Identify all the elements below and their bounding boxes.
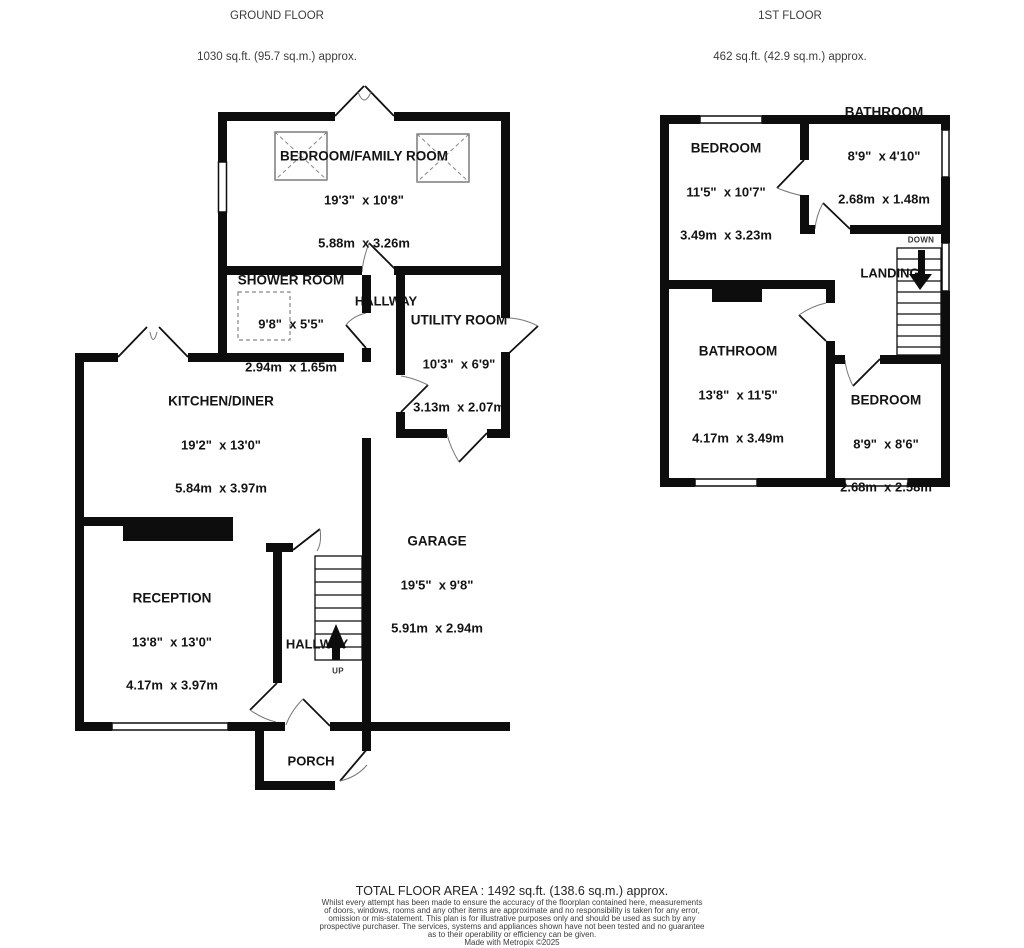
room-label-garage: GARAGE 19'5" x 9'8" 5.91m x 2.94m: [391, 505, 483, 665]
room-label-bathroom1: BATHROOM 8'9" x 4'10" 2.68m x 1.48m: [838, 76, 930, 236]
room-name: UTILITY ROOM: [411, 313, 508, 328]
room-dims-metric: 5.84m x 3.97m: [168, 481, 274, 496]
door-leaf: [777, 160, 804, 188]
room-name: BEDROOM: [680, 141, 772, 156]
door-leaf: [799, 315, 826, 341]
room-name: RECEPTION: [126, 591, 218, 606]
room-label-reception: RECEPTION 13'8" x 13'0" 4.17m x 3.97m: [126, 562, 218, 722]
label-hallway-upper: HALLWAY: [355, 294, 417, 309]
room-dims-metric: 2.68m x 2.58m: [840, 480, 932, 495]
door-arc: [815, 203, 823, 229]
window-symbol: [219, 162, 227, 212]
door-leaf: [293, 529, 320, 550]
window-symbol: [942, 130, 949, 177]
room-dims-metric: 4.17m x 3.97m: [126, 678, 218, 693]
room-name: BATHROOM: [838, 105, 930, 120]
room-dims-imperial: 11'5" x 10'7": [680, 185, 772, 200]
room-dims-metric: 3.49m x 3.23m: [680, 228, 772, 243]
window-symbol: [112, 723, 228, 730]
window-symbol: [695, 479, 757, 486]
label-down: DOWN: [908, 236, 935, 245]
stairs-outline: [897, 248, 941, 355]
label-up: UP: [332, 667, 344, 676]
room-name: BEDROOM: [840, 393, 932, 408]
room-name: BATHROOM: [692, 344, 784, 359]
room-dims-imperial: 13'8" x 11'5": [692, 388, 784, 403]
room-dims-metric: 5.91m x 2.94m: [391, 621, 483, 636]
room-label-bedroom1: BEDROOM 11'5" x 10'7" 3.49m x 3.23m: [680, 112, 772, 272]
first-floor-area: 462 sq.ft. (42.9 sq.m.) approx.: [713, 51, 866, 65]
room-dims-metric: 4.17m x 3.49m: [692, 431, 784, 446]
room-name: SHOWER ROOM: [238, 273, 345, 288]
room-name: GARAGE: [391, 534, 483, 549]
room-label-bedroom2: BEDROOM 8'9" x 8'6" 2.68m x 2.58m: [840, 364, 932, 524]
door-arc: [346, 313, 366, 325]
room-label-utility: UTILITY ROOM 10'3" x 6'9" 3.13m x 2.07m: [411, 284, 508, 444]
label-landing: LANDING: [860, 266, 919, 281]
door-leaf: [159, 327, 188, 357]
floorplan-page: GROUND FLOOR 1030 sq.ft. (95.7 sq.m.) ap…: [0, 0, 1024, 948]
room-name: KITCHEN/DINER: [168, 394, 274, 409]
label-porch: PORCH: [288, 754, 335, 769]
stairs-treads: [315, 569, 362, 647]
door-arc: [507, 318, 538, 326]
room-dims-metric: 3.13m x 2.07m: [411, 400, 508, 415]
room-dims-metric: 2.68m x 1.48m: [838, 192, 930, 207]
door-leaf: [507, 326, 538, 355]
room-dims-imperial: 19'5" x 9'8": [391, 578, 483, 593]
door-arc: [250, 710, 276, 722]
first-floor-stairs: [897, 248, 941, 355]
door-arc: [340, 765, 367, 781]
window-symbol: [942, 243, 949, 291]
total-floor-area: TOTAL FLOOR AREA : 1492 sq.ft. (138.6 sq…: [356, 884, 668, 898]
ground-floor-title: GROUND FLOOR: [197, 10, 357, 24]
room-name: BEDROOM/FAMILY ROOM: [280, 149, 448, 164]
door-leaf: [118, 327, 147, 357]
door-leaf: [340, 748, 368, 781]
door-leaf: [303, 699, 330, 726]
room-dims-imperial: 8'9" x 8'6": [840, 437, 932, 452]
room-dims-imperial: 9'8" x 5'5": [238, 317, 345, 332]
disclaimer-text: Whilst every attempt has been made to en…: [252, 899, 772, 946]
ground-floor-header: GROUND FLOOR 1030 sq.ft. (95.7 sq.m.) ap…: [197, 0, 357, 91]
door-arc: [150, 332, 157, 340]
metropix-credit: Made with Metropix ©2025: [252, 939, 772, 947]
door-arc: [317, 529, 321, 551]
door-leaf: [365, 86, 394, 116]
door-leaf: [250, 683, 277, 710]
room-dims-imperial: 19'3" x 10'8": [280, 193, 448, 208]
room-dims-imperial: 13'8" x 13'0": [126, 635, 218, 650]
door-arc: [358, 92, 371, 100]
room-dims-imperial: 8'9" x 4'10": [838, 149, 930, 164]
room-dims-imperial: 19'2" x 13'0": [168, 438, 274, 453]
room-label-bathroom2: BATHROOM 13'8" x 11'5" 4.17m x 3.49m: [692, 315, 784, 475]
door-leaf: [346, 325, 366, 348]
door-arc: [777, 188, 804, 196]
label-hallway-lower: HALLWAY: [286, 637, 348, 652]
room-dims-imperial: 10'3" x 6'9": [411, 357, 508, 372]
chimney-breast: [712, 280, 762, 302]
door-arc: [799, 303, 826, 315]
room-label-kitchen: KITCHEN/DINER 19'2" x 13'0" 5.84m x 3.97…: [168, 365, 274, 525]
ground-floor-area: 1030 sq.ft. (95.7 sq.m.) approx.: [197, 51, 357, 65]
first-floor-title: 1ST FLOOR: [713, 10, 866, 24]
door-arc: [286, 699, 303, 725]
